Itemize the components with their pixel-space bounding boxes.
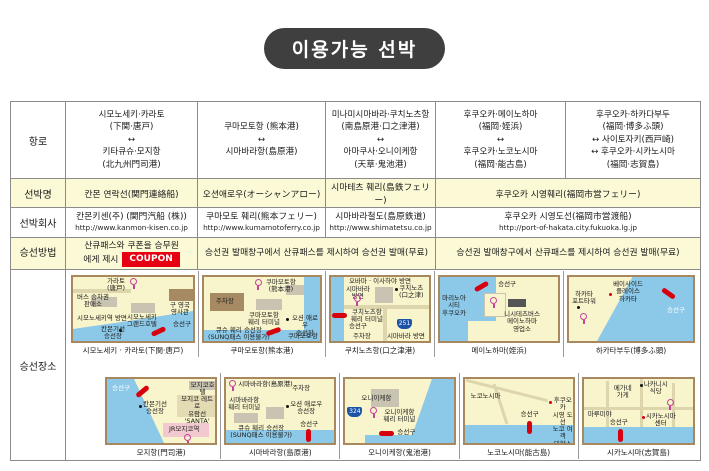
map-canvas: 오바마 · 이사하야 방면 시마바라 방면 쿠치노츠항 훼리 터미널 쿠치노츠 …: [329, 275, 431, 343]
map-label: 하카타 포트타워: [572, 291, 596, 306]
route-cell-kumamoto: 쿠마모토항 (熊本港) ↔ 시마바라항(島原港): [198, 102, 326, 179]
company-url: http://port-of-hakata.city.fukuoka.lg.jp: [438, 223, 698, 232]
map-label: 승선구: [300, 421, 318, 428]
boarding-gate-marker: [332, 313, 347, 318]
route-cell-meinohama: 후쿠오카·메이노하마 (福岡·姪浜) ↔ 후쿠오카·노코노시마 (福岡·能古島): [436, 102, 566, 179]
company-name: 쿠마모토 훼리(熊本フェリー): [206, 212, 317, 222]
company-name: 칸몬키센(주) (関門汽船 (株)): [76, 212, 187, 222]
map-label: 시카노시마 센터: [646, 413, 676, 428]
map-label: 승선구: [521, 411, 539, 418]
port-pin-icon: [228, 380, 237, 392]
map-kumamoto-port: 쿠마모토항 (熊本港) 주차장 쿠마모토항 훼리 터미널 오션 애로우 승선장 …: [199, 271, 326, 357]
map-label: 후쿠오카 시영 도선 노코 여객 대합소: [553, 397, 573, 445]
building-block: [131, 303, 155, 313]
map-meinohama: 승선구 마리노아 시티 후쿠오카 니시테츠버스 메이노하마 영업소 메이노하마(…: [435, 271, 564, 357]
building-block: [234, 413, 258, 423]
ship-name-cell: 후쿠오카 시영훼리(福岡市営フェリー): [436, 179, 701, 208]
poi-dot-icon: [286, 318, 289, 321]
map-label: 오니이케항 훼리 터미널: [383, 409, 415, 424]
map-shimonoseki-karato: 가라토 (唐戸) 구 영국 영사관 버스 승차권 판매소 시모노세키 그랜드호텔…: [68, 271, 199, 357]
map-label: 메가네 가게: [614, 385, 632, 400]
poi-dot-icon: [609, 293, 612, 296]
map-label: 버스 승차권 판매소: [77, 294, 109, 309]
map-label: 주차장: [292, 385, 310, 392]
map-label: 승선구: [349, 323, 367, 330]
leaflet-page: 이용가능 선박 항로 시모노세키·카라토 (下関·唐戸) ↔ 키타큐슈·모지항 …: [0, 0, 709, 471]
company-url: http://www.shimatetsu.co.jp: [328, 223, 433, 232]
map-label: 주차장: [353, 333, 371, 340]
port-pin-icon: [183, 434, 192, 445]
map-label: 승선구: [610, 419, 628, 426]
ship-name-cell: 오션애로우(オーシャンアロー): [198, 179, 326, 208]
map-canvas: 가라토 (唐戸) 구 영국 영사관 버스 승차권 판매소 시모노세키 그랜드호텔…: [71, 275, 195, 343]
maps-area: 가라토 (唐戸) 구 영국 영사관 버스 승차권 판매소 시모노세키 그랜드호텔…: [68, 271, 698, 459]
map-caption: 시마바라항(島原港): [249, 445, 312, 459]
map-label: 승선구: [112, 385, 130, 392]
poi-dot-icon: [119, 329, 122, 332]
route-cell-kuchinotsu: 미나미시마바라·쿠치노츠항 (南島原港·口之津港) ↔ 아마쿠사·오니이케항 (…: [326, 102, 436, 179]
boarding-method-text: 에게 제시: [83, 255, 118, 265]
map-canvas: 324 오니이케항 오니이케항 훼리 터미널 승선구: [343, 377, 455, 445]
map-label: 쿠마모토항 훼리 터미널: [248, 312, 280, 327]
map-canvas: 쿠마모토항 (熊本港) 주차장 쿠마모토항 훼리 터미널 오션 애로우 승선장 …: [202, 275, 322, 343]
road: [606, 381, 609, 427]
boarding-method-cell: 승선권 발매창구에서 산큐패스를 제시하여 승선권 발매(무료): [436, 238, 701, 270]
coupon-badge: COUPON: [122, 252, 179, 267]
row-label-company: 선박회사: [11, 208, 66, 238]
poi-dot-icon: [640, 384, 643, 387]
map-shimabara-port: 시마바라항(島原港) 주차장 시마바라항 훼리 터미널 오션 애로우 승선장 큐…: [221, 373, 340, 459]
ship-name-cell: 칸몬 연락선(関門連絡船): [66, 179, 198, 208]
poi-dot-icon: [577, 306, 580, 309]
map-label: 니시테츠버스 메이노하마 영업소: [504, 311, 540, 333]
company-name: 후쿠오카 시영도선(福岡市営渡船): [504, 212, 631, 222]
map-label: 베이사이드 플레이스 하카타: [613, 281, 643, 303]
map-label: 마리노아 시티 후쿠오카: [442, 295, 466, 317]
boarding-gate-marker: [527, 421, 532, 434]
company-cell: 후쿠오카 시영도선(福岡市営渡船) http://port-of-hakata.…: [436, 208, 701, 238]
map-shikanoshima: 나카니시 식당 메가네 가게 마루미야 시카노시마 센터 승선구 시카노시마(: [579, 373, 698, 459]
row-label-ship-name: 선박명: [11, 179, 66, 208]
row-label-boarding-place: 승선장소: [11, 270, 66, 461]
poi-dot-icon: [549, 401, 552, 404]
row-label-route: 항로: [11, 102, 66, 179]
maps-row-bottom: 승선구 칸몬기선 승선장 모지코호텔 모지코 레트로 유람선 'SANTA' 승…: [68, 373, 698, 459]
port-pin-icon: [254, 279, 263, 291]
map-oniike-port: 324 오니이케항 오니이케항 훼리 터미널 승선구 오니이케항(鬼池港): [340, 373, 459, 459]
map-caption: 쿠치노츠항(口之津港): [345, 343, 415, 357]
building-block: [169, 289, 195, 301]
map-label: 칸몬기선 승선장: [101, 326, 125, 341]
building-block: [256, 299, 282, 310]
map-canvas: 승선구 칸몬기선 승선장 모지코호텔 모지코 레트로 유람선 'SANTA' 승…: [105, 377, 217, 445]
map-caption: 하카타부두(博多ふ頭): [596, 343, 666, 357]
poi-dot-icon: [286, 405, 289, 408]
poi-dot-icon: [395, 288, 398, 291]
map-label: 주차장: [216, 298, 234, 305]
boarding-gate-marker: [306, 429, 311, 442]
map-mojiko-port: 승선구 칸몬기선 승선장 모지코호텔 모지코 레트로 유람선 'SANTA' 승…: [102, 373, 221, 459]
map-label: 승선구: [397, 429, 415, 436]
company-cell: 칸몬키센(주) (関門汽船 (株)) http://www.kanmon-kis…: [66, 208, 198, 238]
map-label: 가라토 (唐戸): [107, 278, 125, 293]
route-cell-shimonoseki: 시모노세키·카라토 (下関·唐戸) ↔ 키타큐슈·모지항 (北九州門司港): [66, 102, 198, 179]
map-label: 오션 애로우 승선장: [290, 401, 322, 416]
port-pin-icon: [353, 295, 362, 307]
map-label: JR모지코역: [169, 426, 199, 433]
map-label: 쿠마모토항 (熊本港): [266, 279, 296, 294]
map-canvas: 하카타 포트타워 베이사이드 플레이스 하카타 승선구: [567, 275, 695, 343]
ship-name-cell: 시마테츠 훼리(島鉄フェリー): [326, 179, 436, 208]
map-nokonoshima: 노코노시마 승선구 후쿠오카 시영 도선 노코 여객 대합소 노코노시마(能古島…: [460, 373, 579, 459]
map-label: 구 영국 영사관: [170, 302, 190, 317]
boarding-gate-marker: [379, 431, 394, 436]
company-url: http://www.kanmon-kisen.co.jp: [68, 223, 195, 232]
route-shield: 251: [397, 319, 412, 329]
water-area: [365, 435, 425, 443]
map-label: 시마바라 방면: [387, 333, 425, 340]
map-label: 큐슈 훼리 승선장 (SUNQ패스 이용불가): [230, 425, 292, 440]
ferry-info-table: 항로 시모노세키·카라토 (下関·唐戸) ↔ 키타큐슈·모지항 (北九州門司港)…: [10, 101, 701, 461]
map-caption: 쿠마모토항(熊本港): [231, 343, 294, 357]
map-label: 시모노세키 그랜드호텔: [127, 314, 157, 329]
map-label: 승선구: [498, 281, 516, 288]
route-cell-hakata: 후쿠오카·하카다부두 (福岡·博多ふ頭) ↔ 사이토자키(西戸崎) ↔ 후쿠오카…: [566, 102, 701, 179]
map-canvas: 노코노시마 승선구 후쿠오카 시영 도선 노코 여객 대합소: [463, 377, 575, 445]
building-block: [508, 299, 526, 307]
maps-row-top: 가라토 (唐戸) 구 영국 영사관 버스 승차권 판매소 시모노세키 그랜드호텔…: [68, 271, 698, 357]
map-label: 나카니시 식당: [644, 381, 668, 396]
map-label: 큐슈 훼리 승선장 (SUNQ패스 이용불가): [208, 327, 270, 342]
map-caption: 노코노시마(能古島): [487, 445, 550, 459]
map-caption: 시카노시마(志賀島): [607, 445, 670, 459]
boarding-place-cell: 가라토 (唐戸) 구 영국 영사관 버스 승차권 판매소 시모노세키 그랜드호텔…: [66, 270, 701, 461]
poi-dot-icon: [642, 416, 645, 419]
port-pin-icon: [489, 297, 498, 309]
port-pin-icon: [129, 278, 138, 290]
company-name: 시마바라철도(島原鉄道): [335, 212, 426, 222]
water-area: [331, 277, 344, 341]
map-canvas: 나카니시 식당 메가네 가게 마루미야 시카노시마 센터 승선구: [582, 377, 695, 445]
map-caption: 오니이케항(鬼池港): [368, 445, 431, 459]
map-label: 오니이케항: [361, 395, 391, 402]
boarding-method-cell: 산큐패스와 쿠폰을 승무원 에게 제시COUPON: [66, 238, 198, 270]
map-label: 쿠치노츠 (口之津): [399, 285, 424, 300]
company-url: http://www.kumamotoferry.co.jp: [200, 223, 323, 232]
boarding-method-cell: 승선권 발매창구에서 산큐패스를 제시하여 승선권 발매(무료): [198, 238, 436, 270]
poi-dot-icon: [139, 405, 142, 408]
boarding-gate-marker: [618, 429, 623, 442]
building-block: [375, 287, 393, 303]
port-pin-icon: [369, 407, 378, 419]
page-title: 이용가능 선박: [264, 28, 446, 69]
building-block: [266, 407, 284, 419]
water-area: [440, 321, 468, 343]
row-label-boarding-method: 승선방법: [11, 238, 66, 270]
map-label: 승선구: [667, 307, 685, 314]
map-caption: 메이노하마(姪浜): [471, 343, 526, 357]
water-area: [409, 379, 455, 443]
port-pin-icon: [579, 313, 588, 325]
map-label: 쿠마모토항: [288, 333, 318, 340]
route-shield: 324: [347, 407, 362, 417]
map-caption: 시모노세키 · 카라토(下関·唐戸): [83, 343, 184, 357]
map-label: 칸몬기선 승선장: [143, 401, 167, 416]
map-caption: 모지항(門司港): [137, 445, 186, 459]
water-area: [584, 427, 693, 443]
map-label: 시모노세키역 방면: [77, 315, 127, 322]
map-label: 시마바라항(島原港): [238, 381, 292, 388]
map-label: 마루미야: [588, 411, 612, 418]
boarding-method-text: 산큐패스와 쿠폰을 승무원: [84, 241, 179, 251]
map-canvas: 시마바라항(島原港) 주차장 시마바라항 훼리 터미널 오션 애로우 승선장 큐…: [224, 377, 336, 445]
map-label: 노코노시마: [471, 393, 501, 400]
company-cell: 쿠마모토 훼리(熊本フェリー) http://www.kumamotoferry…: [198, 208, 326, 238]
port-pin-icon: [666, 399, 675, 411]
map-hakata-pier: 하카타 포트타워 베이사이드 플레이스 하카타 승선구 하카타부두(博多ふ頭): [564, 271, 698, 357]
map-label: 승선구: [173, 321, 191, 328]
map-label: 시마바라항 훼리 터미널: [228, 397, 260, 412]
map-canvas: 승선구 마리노아 시티 후쿠오카 니시테츠버스 메이노하마 영업소: [438, 275, 560, 343]
company-cell: 시마바라철도(島原鉄道) http://www.shimatetsu.co.jp: [326, 208, 436, 238]
map-kuchinotsu-port: 오바마 · 이사하야 방면 시마바라 방면 쿠치노츠항 훼리 터미널 쿠치노츠 …: [326, 271, 435, 357]
